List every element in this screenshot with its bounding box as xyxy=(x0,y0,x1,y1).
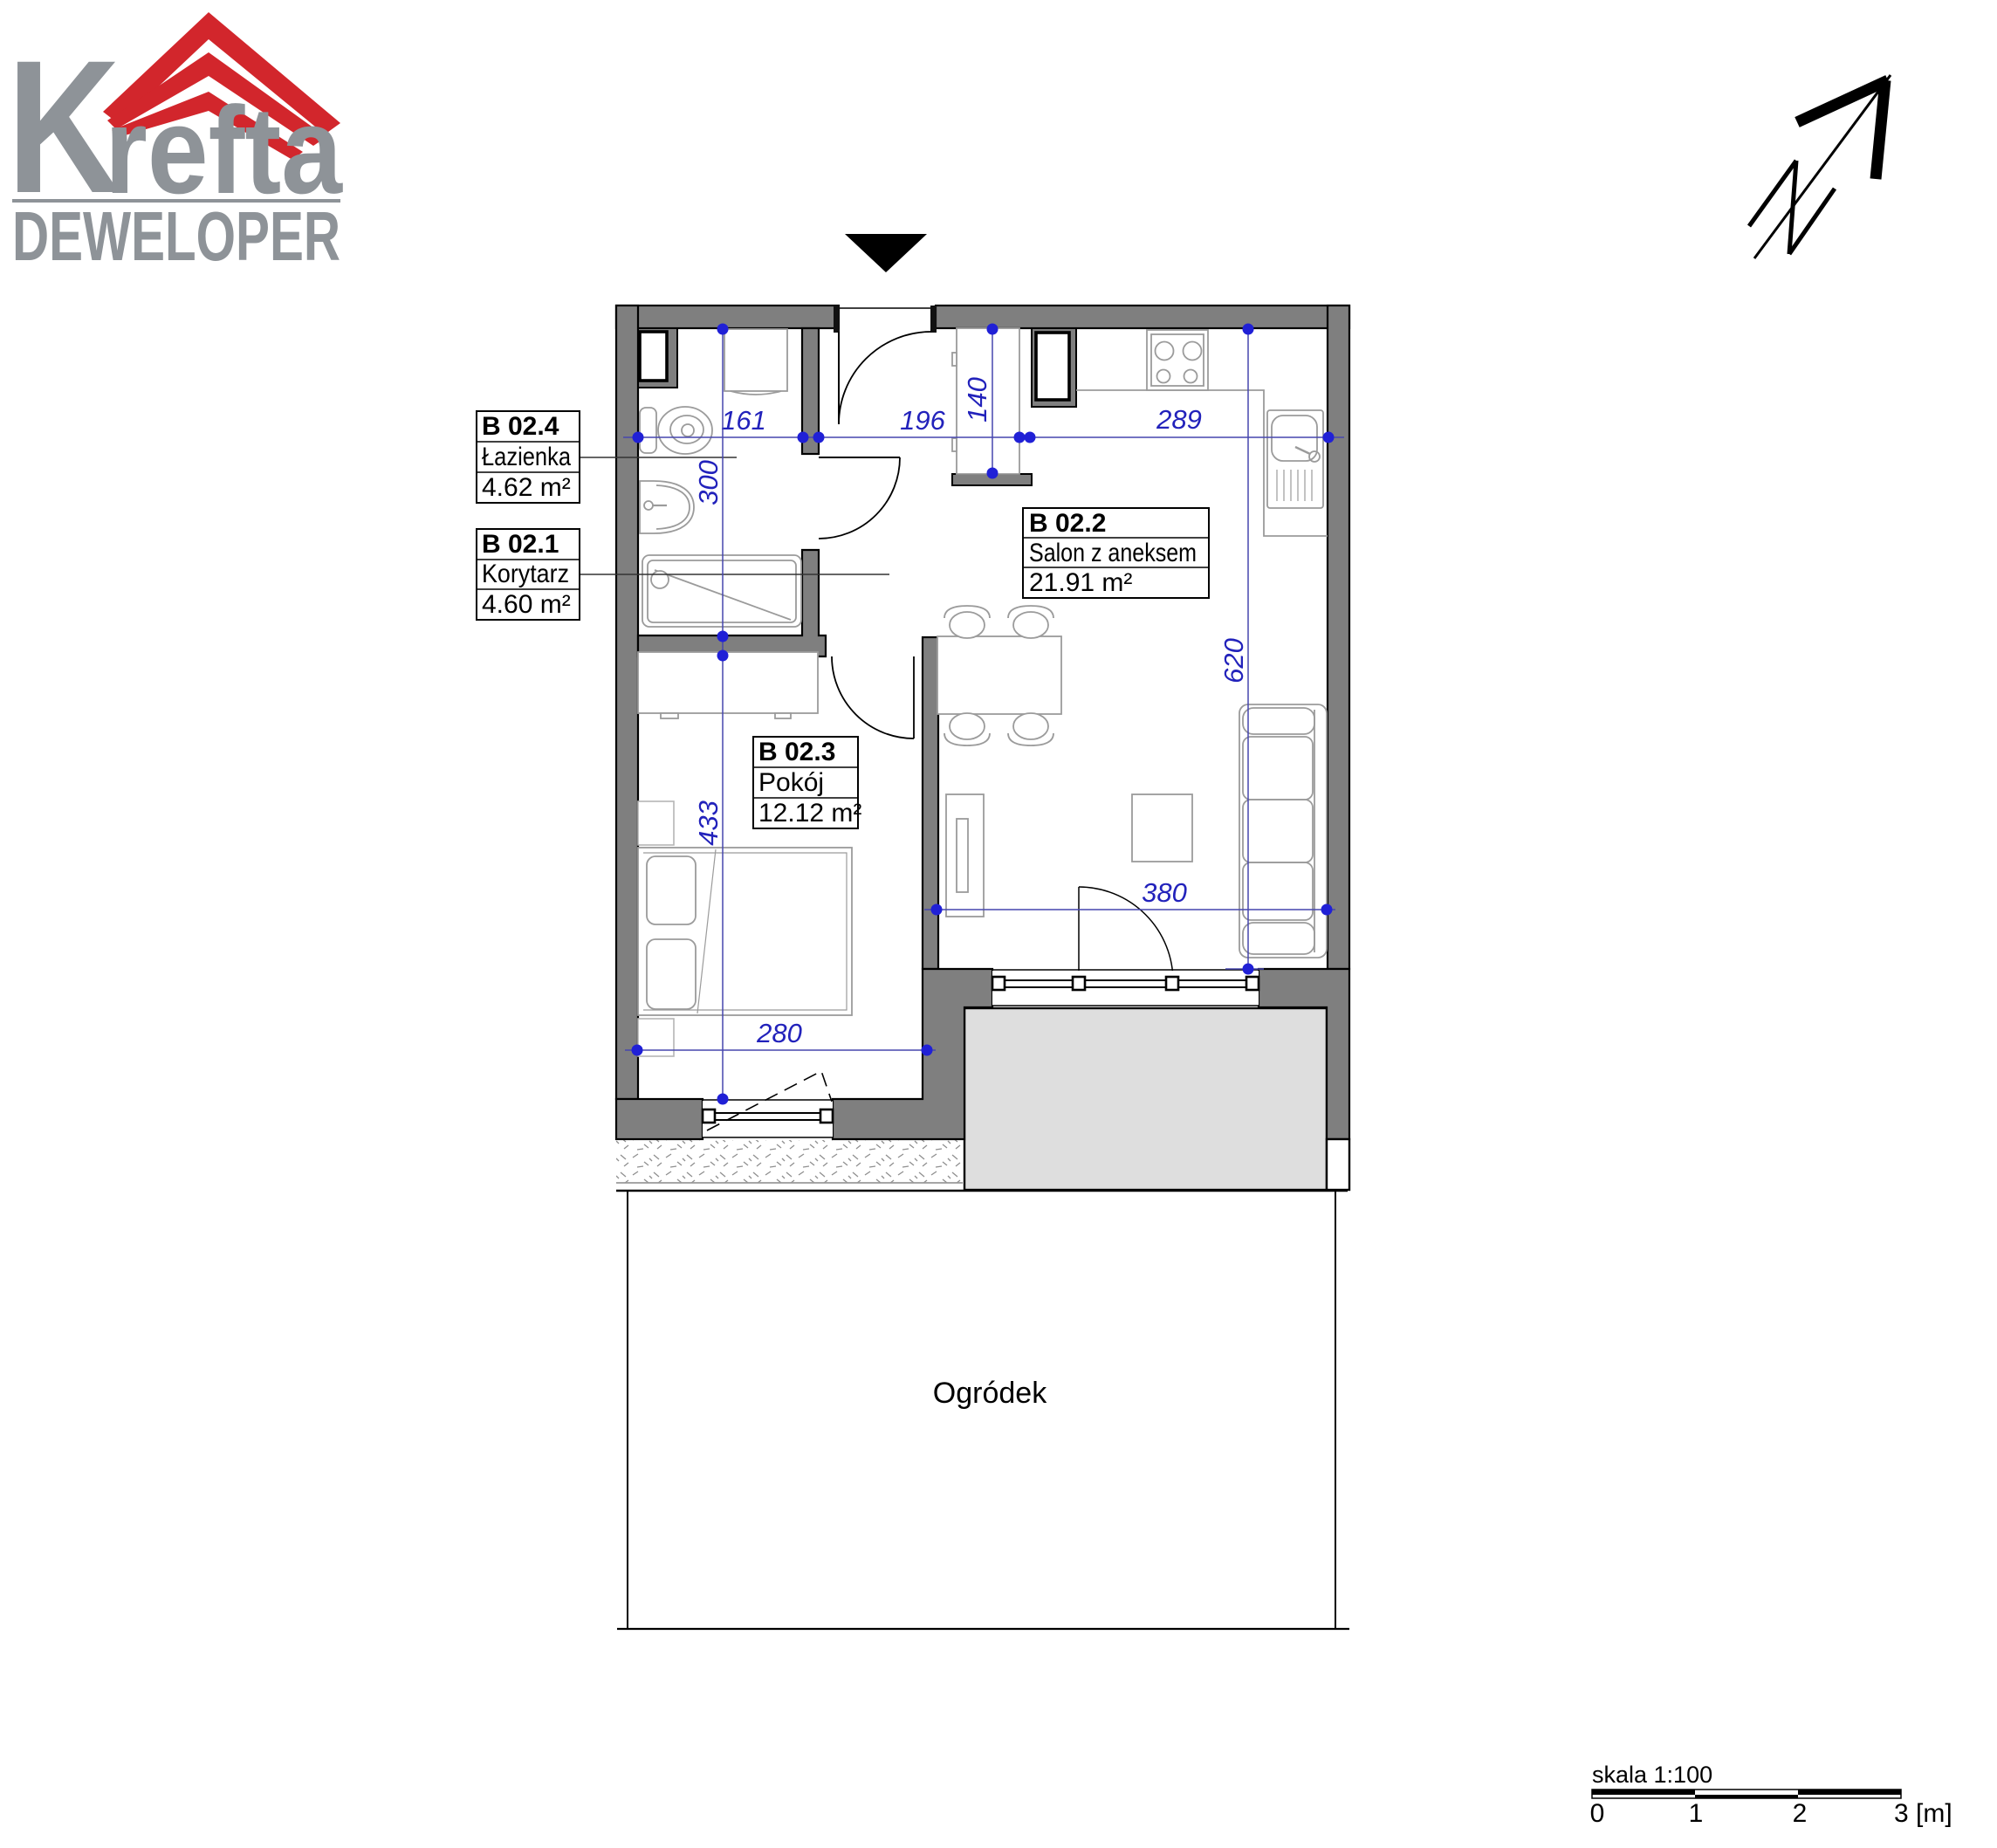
svg-text:Ogródek: Ogródek xyxy=(933,1377,1047,1410)
svg-text:4.60 m²: 4.60 m² xyxy=(482,590,571,619)
svg-text:300: 300 xyxy=(693,460,724,505)
svg-text:B 02.4: B 02.4 xyxy=(482,412,559,441)
svg-text:Salon z aneksem: Salon z aneksem xyxy=(1029,539,1197,567)
svg-text:B 02.3: B 02.3 xyxy=(758,738,835,766)
svg-text:Pokój: Pokój xyxy=(758,768,824,797)
svg-text:2: 2 xyxy=(1793,1799,1808,1828)
svg-text:3 [m]: 3 [m] xyxy=(1894,1799,1952,1828)
svg-text:12.12 m²: 12.12 m² xyxy=(758,799,861,828)
svg-text:B 02.2: B 02.2 xyxy=(1029,509,1106,538)
svg-text:Korytarz: Korytarz xyxy=(482,560,569,588)
svg-text:B 02.1: B 02.1 xyxy=(482,530,559,559)
svg-text:4.62 m²: 4.62 m² xyxy=(482,473,571,502)
svg-text:0: 0 xyxy=(1590,1799,1605,1828)
svg-text:DEWELOPER: DEWELOPER xyxy=(12,197,340,275)
svg-text:196: 196 xyxy=(900,405,945,436)
svg-text:289: 289 xyxy=(1156,404,1202,435)
svg-text:Łazienka: Łazienka xyxy=(482,443,571,471)
svg-text:433: 433 xyxy=(693,800,724,846)
svg-text:21.91 m²: 21.91 m² xyxy=(1029,568,1132,597)
svg-text:140: 140 xyxy=(962,377,992,422)
svg-text:1: 1 xyxy=(1689,1799,1704,1828)
svg-text:skala 1:100: skala 1:100 xyxy=(1592,1762,1712,1788)
svg-text:380: 380 xyxy=(1142,877,1187,908)
svg-text:161: 161 xyxy=(721,405,766,436)
svg-text:280: 280 xyxy=(756,1018,802,1048)
svg-text:620: 620 xyxy=(1218,638,1249,684)
